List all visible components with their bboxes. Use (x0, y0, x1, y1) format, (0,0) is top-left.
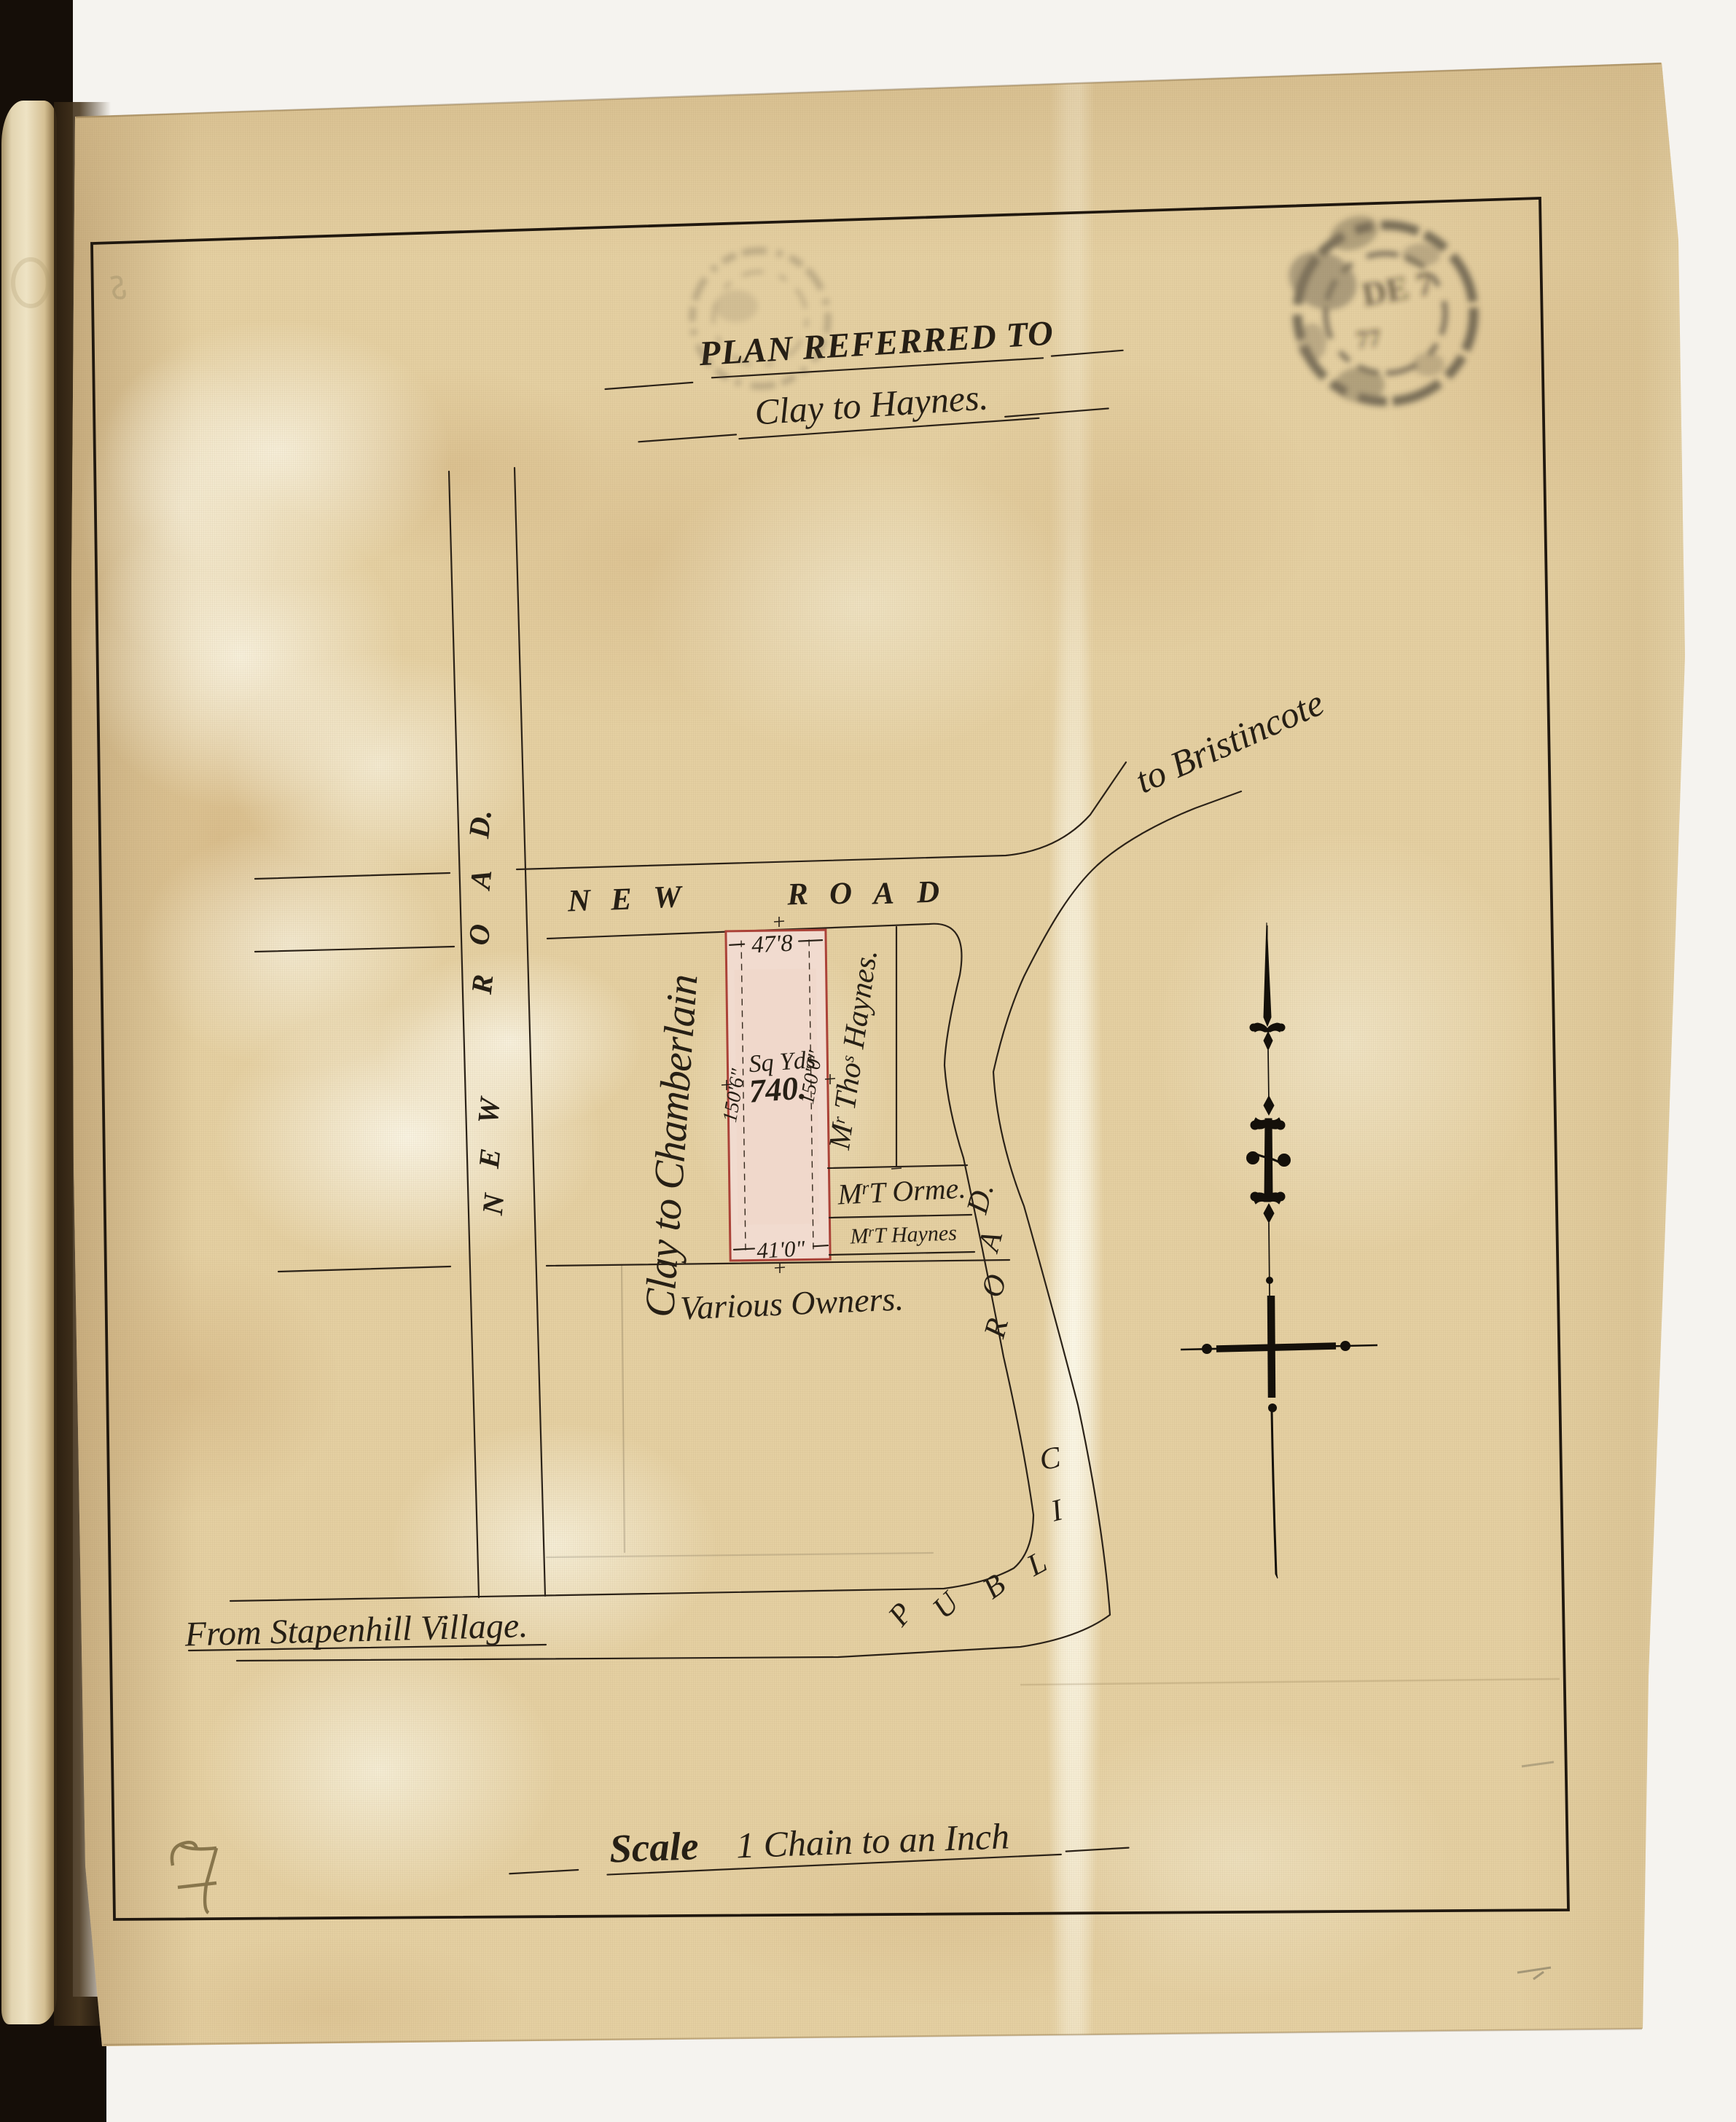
svg-text:Scale: Scale (609, 1823, 699, 1871)
svg-text:DE 7: DE 7 (1359, 265, 1436, 313)
svg-text:47'8: 47'8 (751, 931, 794, 959)
svg-text:MrT Orme.: MrT Orme. (836, 1171, 966, 1210)
svg-text:From Stapenhill Village.: From Stapenhill Village. (184, 1606, 528, 1653)
svg-text:A: A (971, 1228, 1009, 1257)
svg-text:740.: 740. (748, 1069, 808, 1109)
svg-text:P: P (882, 1597, 920, 1633)
svg-text:D: D (915, 874, 940, 909)
svg-text:W: W (471, 1095, 507, 1125)
svg-text:N: N (566, 883, 593, 918)
svg-text:W: W (653, 880, 684, 915)
svg-text:O: O (462, 923, 497, 947)
svg-text:41'0": 41'0" (756, 1235, 806, 1263)
svg-text:A: A (463, 868, 498, 893)
svg-text:D.: D. (462, 808, 498, 840)
svg-text:C: C (1037, 1441, 1064, 1477)
svg-text:D.: D. (961, 1180, 1001, 1218)
svg-text:R: R (786, 877, 808, 912)
svg-text:MrT Haynes: MrT Haynes (849, 1221, 957, 1248)
svg-text:Mr Thos Haynes.: Mr Thos Haynes. (823, 947, 884, 1152)
svg-text:N: N (476, 1191, 511, 1218)
svg-text:to Bristincote: to Bristincote (1130, 683, 1330, 802)
svg-text:A: A (870, 877, 894, 912)
svg-text:U: U (926, 1585, 967, 1626)
svg-text:L: L (1021, 1546, 1052, 1583)
svg-text:I: I (1047, 1493, 1068, 1529)
svg-text:Various Owners.: Various Owners. (679, 1280, 904, 1326)
svg-text:77: 77 (1355, 325, 1383, 354)
svg-text:E: E (609, 882, 632, 917)
svg-text:R: R (978, 1315, 1015, 1342)
svg-text:R: R (465, 973, 500, 996)
svg-text:Clay to Chamberlain: Clay to Chamberlain (636, 974, 707, 1319)
svg-text:O: O (975, 1271, 1013, 1301)
svg-text:B: B (977, 1567, 1012, 1605)
svg-text:E: E (472, 1147, 507, 1170)
svg-text:O: O (829, 876, 853, 911)
